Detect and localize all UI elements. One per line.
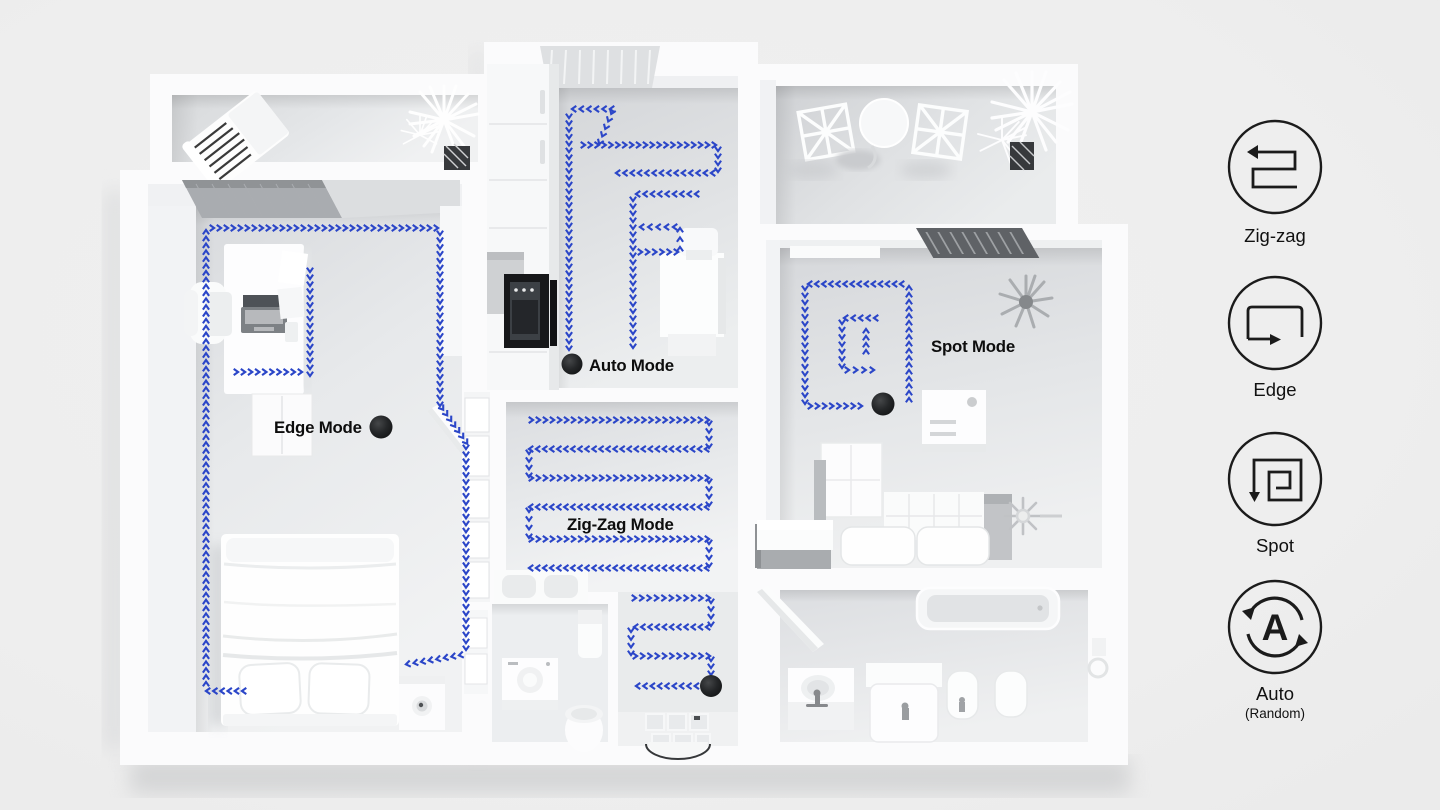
svg-text:(Random): (Random) (1245, 706, 1305, 721)
svg-text:Zig-Zag Mode: Zig-Zag Mode (567, 515, 674, 534)
svg-text:Zig-zag: Zig-zag (1244, 225, 1306, 246)
svg-text:Edge: Edge (1253, 379, 1296, 400)
svg-text:Spot: Spot (1256, 535, 1294, 556)
svg-text:Spot Mode: Spot Mode (931, 337, 1015, 356)
svg-text:Edge Mode: Edge Mode (274, 418, 362, 437)
svg-text:Auto: Auto (1256, 683, 1294, 704)
svg-text:Auto Mode: Auto Mode (589, 356, 674, 375)
svg-text:A: A (1262, 607, 1289, 648)
